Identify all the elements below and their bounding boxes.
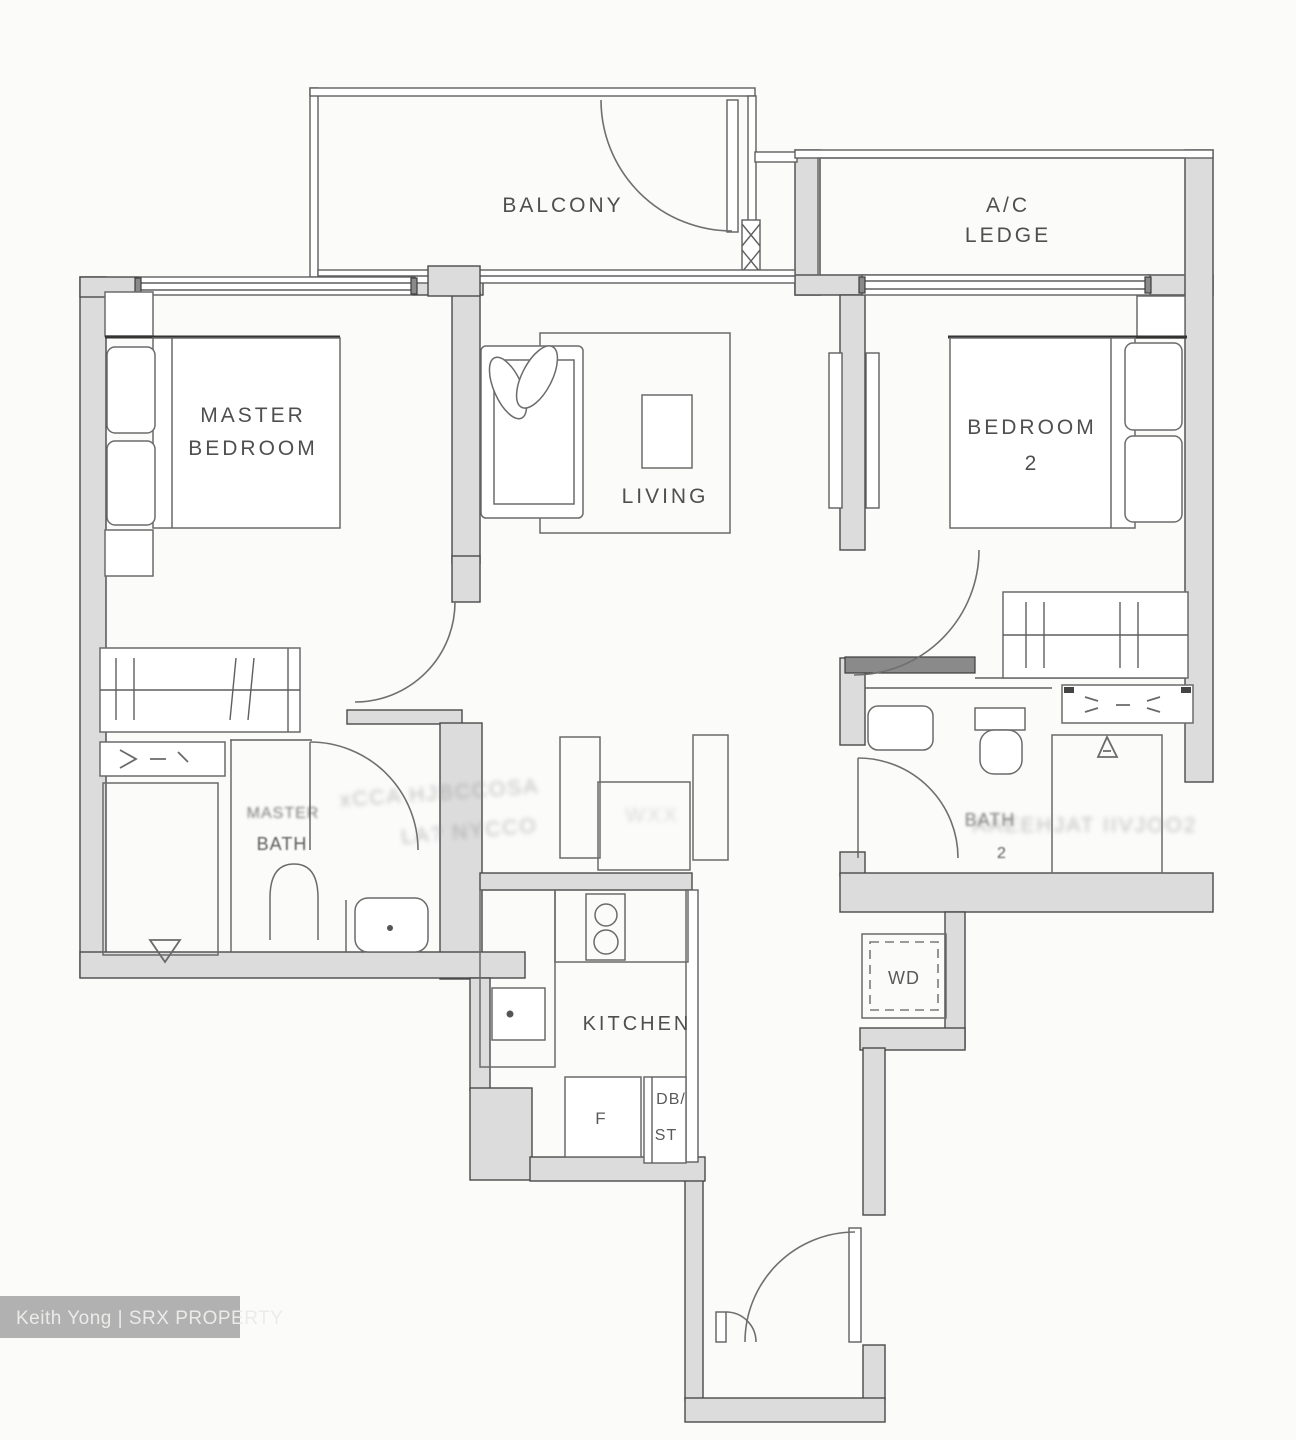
bedroom2-door <box>854 550 979 675</box>
master-bedroom-window <box>135 277 417 295</box>
pillow <box>1125 436 1182 522</box>
master-bed <box>105 292 340 576</box>
living-label: LIVING <box>622 485 709 508</box>
master-bedroom-door <box>355 602 455 702</box>
bedroom2-window <box>859 275 1151 295</box>
floorplan-page: BALCONY A/C LEDGE MASTER BEDROOM LIVING … <box>0 0 1296 1440</box>
ac-ledge-wall-top <box>795 150 1213 158</box>
ac-ledge-label-line2: LEDGE <box>965 224 1051 247</box>
stove <box>586 894 625 960</box>
entrance-door <box>716 1228 861 1342</box>
nightstand <box>1137 296 1185 338</box>
bedroom2-bed <box>948 296 1187 528</box>
pillow <box>1125 343 1182 430</box>
vent-box <box>742 220 760 276</box>
smudge-text: AAEEHJAT IIVJOO2 <box>973 814 1198 837</box>
dining-bench <box>693 735 728 860</box>
dining-bench <box>560 737 600 858</box>
bedroom2-wall-panel-left <box>829 353 842 508</box>
bedroom2-label-line2: 2 <box>1025 452 1040 475</box>
db-store-label-line2: ST <box>655 1127 677 1144</box>
bedroom2-wardrobe <box>1003 592 1188 678</box>
floorplan-drawing: BALCONY A/C LEDGE MASTER BEDROOM LIVING … <box>0 0 1296 1440</box>
watermark-bar: Keith Yong | SRX PROPERTY <box>0 1296 283 1338</box>
coffee-table <box>642 395 692 468</box>
fridge-label: F <box>595 1109 606 1128</box>
sink <box>868 706 933 750</box>
bedroom2-wall-panel-right <box>866 353 879 508</box>
db-store-label-line1: DB/ <box>656 1091 686 1108</box>
master-bedroom-label-line1: MASTER <box>200 404 306 427</box>
sink <box>355 898 428 952</box>
shower <box>1052 735 1162 873</box>
smudge-text: WXX <box>625 804 679 827</box>
master-bedroom-label-line2: BEDROOM <box>188 437 318 460</box>
toilet <box>270 864 318 940</box>
master-bath-label-line2: BATH <box>257 834 308 854</box>
bath2-door <box>858 758 958 858</box>
washer-dryer-label: WD <box>888 968 920 988</box>
pillow <box>107 441 155 525</box>
ledge-connector <box>755 152 797 162</box>
balcony-jamb <box>748 96 756 234</box>
master-bath-label-line1: MASTER <box>247 805 320 822</box>
bath2-label-line2: 2 <box>997 845 1007 862</box>
db-store-box <box>644 1077 686 1163</box>
dining-set <box>560 735 728 870</box>
nightstand <box>105 530 153 576</box>
counter-top <box>555 890 688 962</box>
vanity-ledge <box>100 742 225 776</box>
bath2 <box>865 685 1193 873</box>
ac-ledge-label-line1: A/C <box>986 194 1030 217</box>
watermark-text: Keith Yong | SRX PROPERTY <box>16 1308 283 1329</box>
shower <box>103 783 218 962</box>
balcony-wall-left <box>310 88 318 277</box>
kitchen-sink <box>492 988 545 1040</box>
kitchen-label: KITCHEN <box>583 1013 692 1035</box>
master-wardrobe <box>100 648 300 732</box>
toilet <box>975 708 1025 774</box>
vanity-ledge <box>1062 685 1193 723</box>
wall-junction-block <box>428 266 480 296</box>
pillow <box>107 347 155 433</box>
balcony-label: BALCONY <box>502 194 623 217</box>
nightstand <box>105 292 153 336</box>
bedroom2-label-line1: BEDROOM <box>967 416 1097 439</box>
balcony-wall-top <box>310 88 755 96</box>
